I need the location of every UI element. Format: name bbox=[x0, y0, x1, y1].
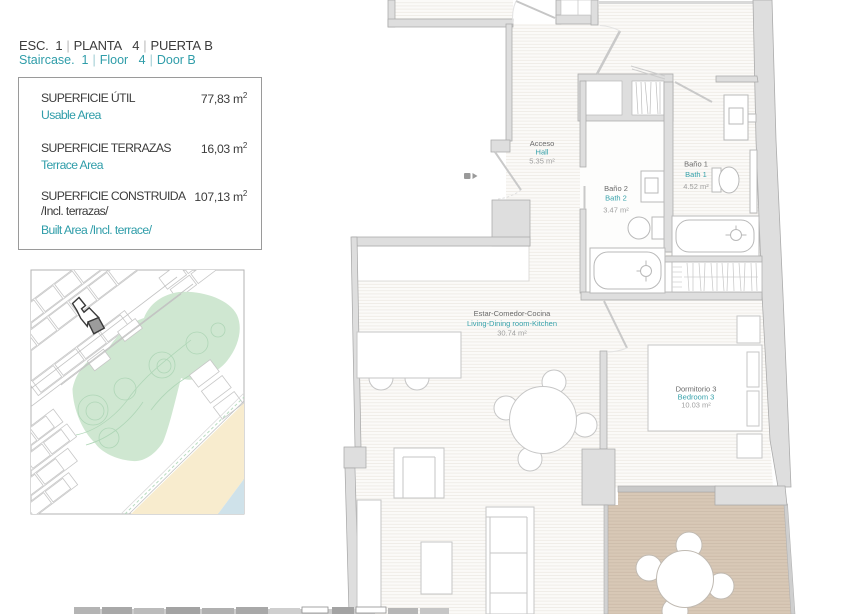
svg-text:4.52 m²: 4.52 m² bbox=[683, 182, 709, 191]
svg-text:5.35 m²: 5.35 m² bbox=[529, 157, 555, 166]
svg-text:3.47 m²: 3.47 m² bbox=[603, 206, 629, 215]
svg-text:30.74 m²: 30.74 m² bbox=[497, 329, 527, 338]
svg-text:Baño 1: Baño 1 bbox=[684, 160, 708, 169]
svg-text:Hall: Hall bbox=[536, 148, 549, 157]
svg-text:Estar-Comedor-Cocina: Estar-Comedor-Cocina bbox=[474, 309, 552, 318]
svg-text:Bath 1: Bath 1 bbox=[685, 170, 707, 179]
svg-text:Bath 2: Bath 2 bbox=[605, 194, 627, 203]
svg-text:Living-Dining room-Kitchen: Living-Dining room-Kitchen bbox=[467, 319, 557, 328]
svg-text:10.03 m²: 10.03 m² bbox=[681, 401, 711, 410]
svg-text:Baño 2: Baño 2 bbox=[604, 184, 628, 193]
